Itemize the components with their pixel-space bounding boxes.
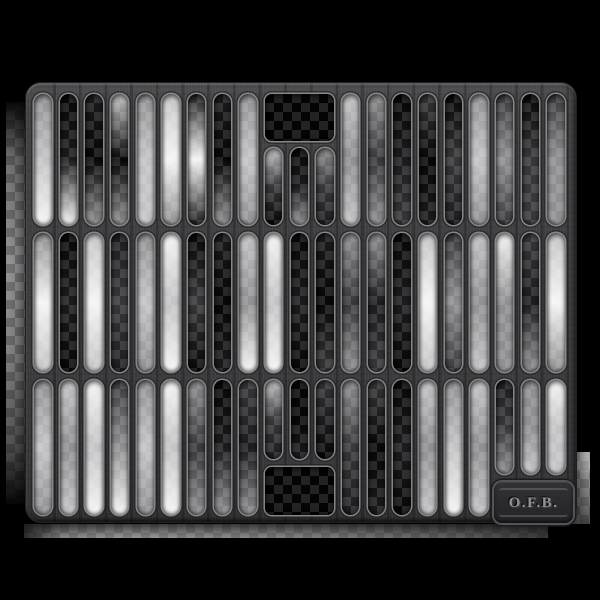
grate-slot-short — [291, 380, 309, 459]
grate-slot — [445, 94, 463, 225]
grate-slot — [162, 380, 180, 515]
grate-slot — [419, 233, 437, 372]
grate-slot — [34, 233, 52, 372]
grate-slot — [316, 233, 334, 372]
grate-slot — [111, 233, 129, 372]
grate-slot — [547, 94, 565, 225]
brand-badge-text: O.F.B. — [509, 495, 559, 512]
grate-slot — [393, 94, 411, 225]
grate-slot — [470, 380, 488, 515]
grate-slot-short — [316, 148, 334, 225]
grate-slot-short — [316, 380, 334, 459]
grate-slot — [445, 233, 463, 372]
grate-slot-short — [265, 380, 283, 459]
grate-slot-short — [547, 380, 565, 474]
grate-slot — [393, 233, 411, 372]
grate-slot — [265, 233, 283, 372]
grate-opening-top — [265, 94, 335, 141]
grate-slot — [162, 94, 180, 225]
grate-slot — [85, 380, 103, 515]
grate-slot — [522, 233, 540, 372]
grate-slot — [368, 94, 386, 225]
grate-slot — [188, 94, 206, 225]
transparency-checker-left — [6, 102, 26, 504]
grate-slot — [342, 94, 360, 225]
grate-slot-short — [291, 148, 309, 225]
grate-slot — [162, 233, 180, 372]
grate-slot-short — [265, 148, 283, 225]
grate-slot-short — [522, 380, 540, 474]
grate-opening-bottom — [265, 467, 335, 515]
grate-slot — [470, 233, 488, 372]
product-image-canvas: O.F.B. — [0, 0, 600, 600]
grate-slot — [239, 380, 257, 515]
grate-slot — [342, 380, 360, 515]
grate-slot — [419, 380, 437, 515]
grate-slot — [368, 233, 386, 372]
grate-slot — [239, 94, 257, 225]
grate-slot — [85, 233, 103, 372]
grate-slot — [60, 233, 78, 372]
grill-grate: O.F.B. — [25, 82, 577, 523]
grate-slot — [60, 94, 78, 225]
grate-slot — [342, 233, 360, 372]
grate-slot — [137, 94, 155, 225]
grate-slot — [137, 233, 155, 372]
transparency-checker-bottom — [24, 524, 548, 538]
grate-slot — [34, 380, 52, 515]
grate-slot — [496, 94, 514, 225]
grate-slot — [188, 380, 206, 515]
grate-slot — [239, 233, 257, 372]
grate-slot — [111, 380, 129, 515]
grate-slot — [445, 380, 463, 515]
grate-slot — [393, 380, 411, 515]
grate-slot — [470, 94, 488, 225]
grate-slot — [188, 233, 206, 372]
grate-slot — [522, 94, 540, 225]
grate-slot — [419, 94, 437, 225]
grate-slot — [291, 233, 309, 372]
brand-badge: O.F.B. — [494, 482, 573, 523]
grate-slot — [214, 380, 232, 515]
grate-slot-short — [496, 380, 514, 474]
grate-slot — [214, 94, 232, 225]
grate-slot — [34, 94, 52, 225]
grate-slot — [137, 380, 155, 515]
grate-slot — [368, 380, 386, 515]
grate-slot — [214, 233, 232, 372]
grate-slot — [547, 233, 565, 372]
grate-slot — [85, 94, 103, 225]
grate-slot — [496, 233, 514, 372]
grate-slot — [60, 380, 78, 515]
grate-slot — [111, 94, 129, 225]
